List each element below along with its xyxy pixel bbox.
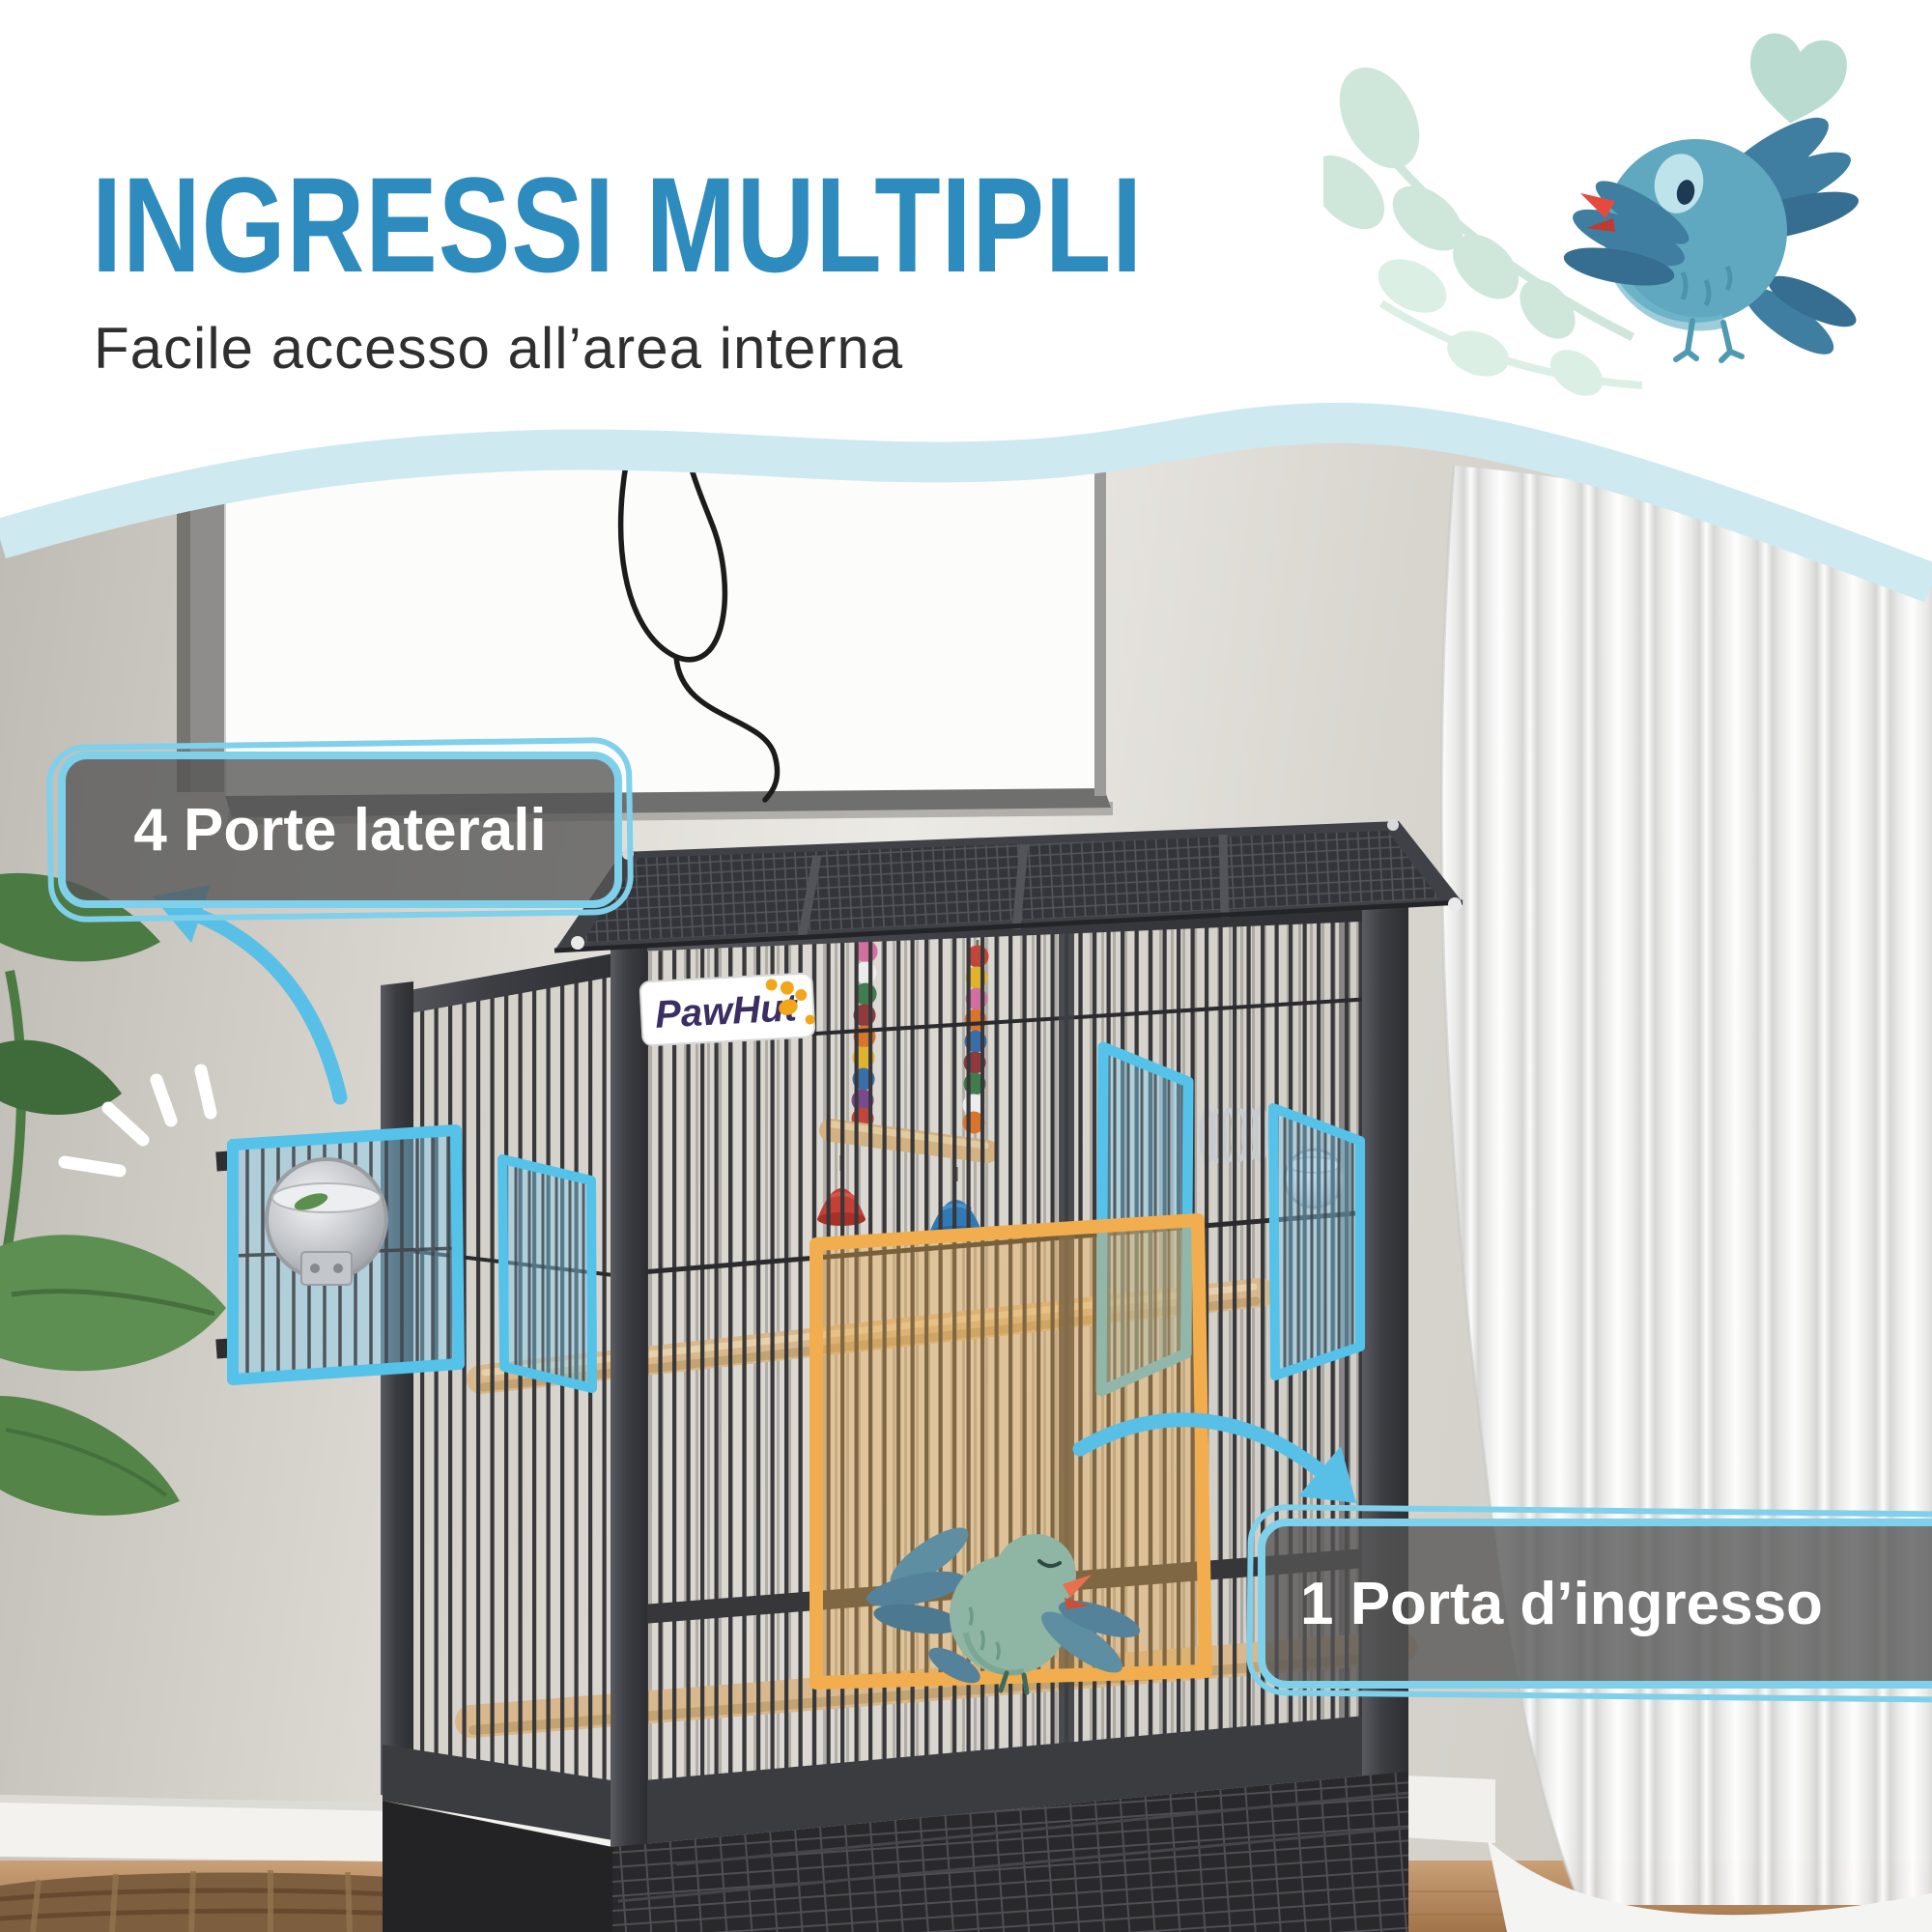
page-subtitle: Facile accesso all’area interna xyxy=(94,315,903,382)
bird-illustration xyxy=(1323,14,1922,410)
side-door-highlight-inner xyxy=(502,1154,592,1391)
front-door-callout-label: 1 Porta d’ingresso xyxy=(1300,1570,1823,1638)
side-door-highlight-right-b xyxy=(1273,1101,1360,1381)
page-title: INGRESSI MULTIPLI xyxy=(92,147,1143,303)
side-doors-callout-label: 4 Porte laterali xyxy=(133,796,546,865)
product-infographic: PawHut xyxy=(0,0,1932,1932)
heart-icon xyxy=(1743,30,1851,129)
brand-logo-text: PawHut xyxy=(654,986,799,1037)
brand-logo: PawHut xyxy=(639,973,815,1045)
side-doors-callout: 4 Porte laterali xyxy=(58,752,622,908)
front-door-callout: 1 Porta d’ingresso xyxy=(1258,1519,1932,1689)
side-door-highlight-open xyxy=(215,1125,459,1383)
